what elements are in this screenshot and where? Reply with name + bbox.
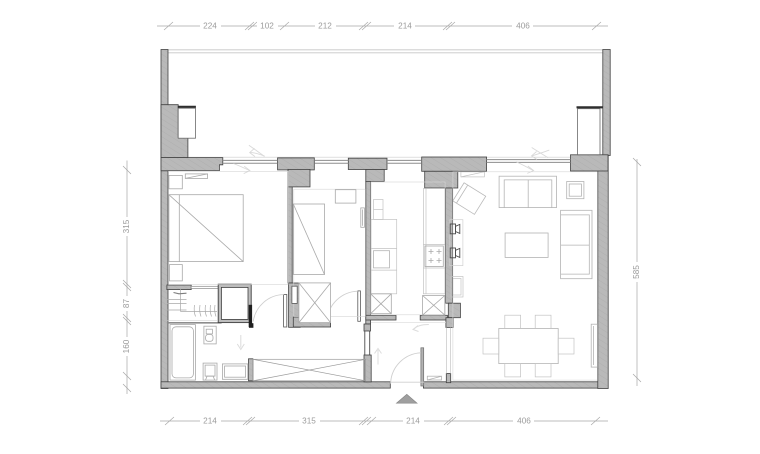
svg-text:224: 224 — [203, 22, 217, 31]
svg-text:406: 406 — [516, 22, 530, 31]
svg-text:102: 102 — [260, 22, 274, 31]
svg-text:160: 160 — [122, 339, 131, 353]
svg-text:214: 214 — [203, 417, 217, 426]
svg-text:214: 214 — [406, 417, 420, 426]
svg-text:87: 87 — [122, 299, 131, 309]
svg-text:212: 212 — [318, 22, 332, 31]
svg-text:214: 214 — [398, 22, 412, 31]
svg-text:406: 406 — [517, 417, 531, 426]
svg-text:585: 585 — [632, 265, 641, 279]
svg-text:315: 315 — [302, 417, 316, 426]
svg-text:315: 315 — [122, 219, 131, 233]
